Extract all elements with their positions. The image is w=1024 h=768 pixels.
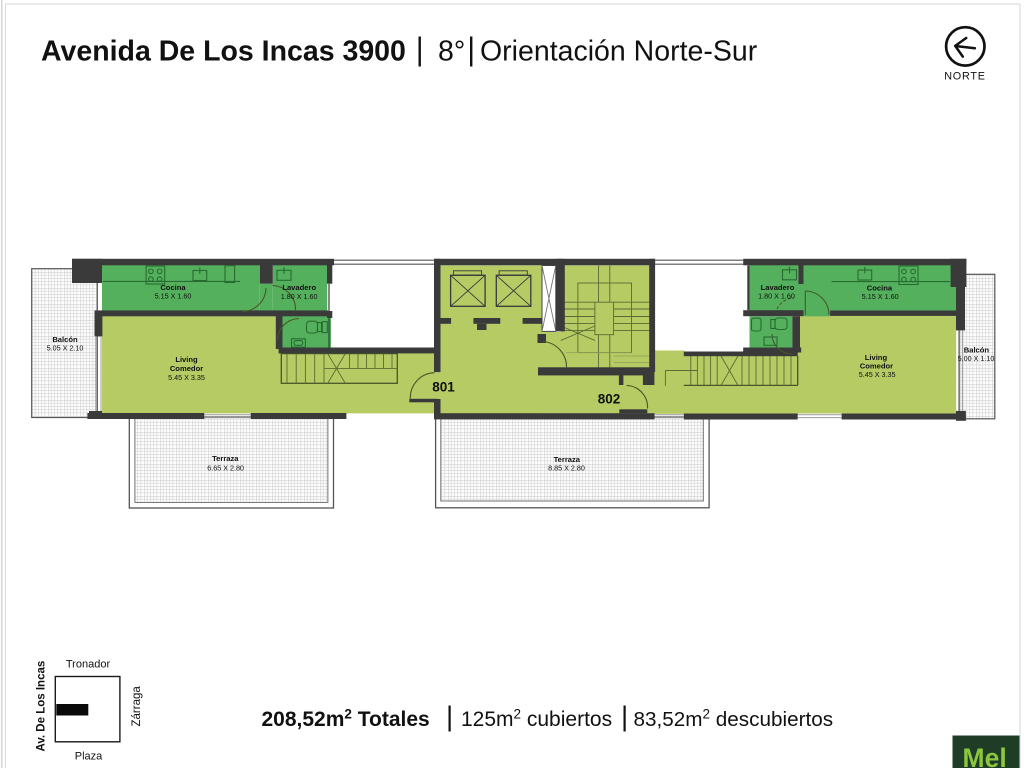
- svg-text:Terraza: Terraza: [212, 454, 239, 463]
- svg-text:5.45 X 3.35: 5.45 X 3.35: [168, 373, 205, 382]
- svg-text:Plaza: Plaza: [75, 751, 103, 763]
- svg-text:8.85 X 2.80: 8.85 X 2.80: [548, 464, 585, 473]
- svg-text:Zárraga: Zárraga: [131, 686, 143, 727]
- svg-text:6.65 X 2.80: 6.65 X 2.80: [207, 463, 244, 472]
- svg-text:NORTE: NORTE: [944, 71, 986, 83]
- svg-text:Comedor: Comedor: [170, 364, 203, 373]
- svg-text:Terraza: Terraza: [554, 455, 581, 464]
- svg-text:Living: Living: [175, 355, 198, 364]
- svg-text:Lavadero: Lavadero: [282, 283, 316, 292]
- svg-text:8°: 8°: [438, 36, 465, 68]
- svg-text:802: 802: [598, 392, 621, 407]
- svg-text:1.80 X 1.60: 1.80 X 1.60: [758, 292, 795, 301]
- svg-text:125m2 cubiertos: 125m2 cubiertos: [461, 706, 612, 731]
- svg-text:5.05 X 2.10: 5.05 X 2.10: [47, 344, 84, 353]
- svg-text:Orientación Norte-Sur: Orientación Norte-Sur: [480, 36, 758, 68]
- svg-text:1.80 X 1.60: 1.80 X 1.60: [281, 292, 318, 301]
- svg-text:Balcón: Balcón: [964, 345, 990, 354]
- svg-text:83,52m2 descubiertos: 83,52m2 descubiertos: [634, 706, 834, 731]
- svg-text:Cocina: Cocina: [867, 283, 893, 292]
- svg-text:5.45 X 3.35: 5.45 X 3.35: [859, 370, 896, 379]
- svg-text:Avenida De Los Incas 3900: Avenida De Los Incas 3900: [41, 36, 406, 68]
- svg-text:Tronador: Tronador: [66, 659, 111, 671]
- svg-text:Mel: Mel: [963, 743, 1007, 768]
- svg-text:Av. De Los Incas: Av. De Los Incas: [36, 661, 48, 752]
- svg-text:801: 801: [432, 380, 455, 395]
- svg-text:5.15 X 1.60: 5.15 X 1.60: [862, 292, 899, 301]
- svg-text:5.00 X 1.10: 5.00 X 1.10: [958, 354, 995, 363]
- svg-text:5.15 X 1.60: 5.15 X 1.60: [155, 292, 192, 301]
